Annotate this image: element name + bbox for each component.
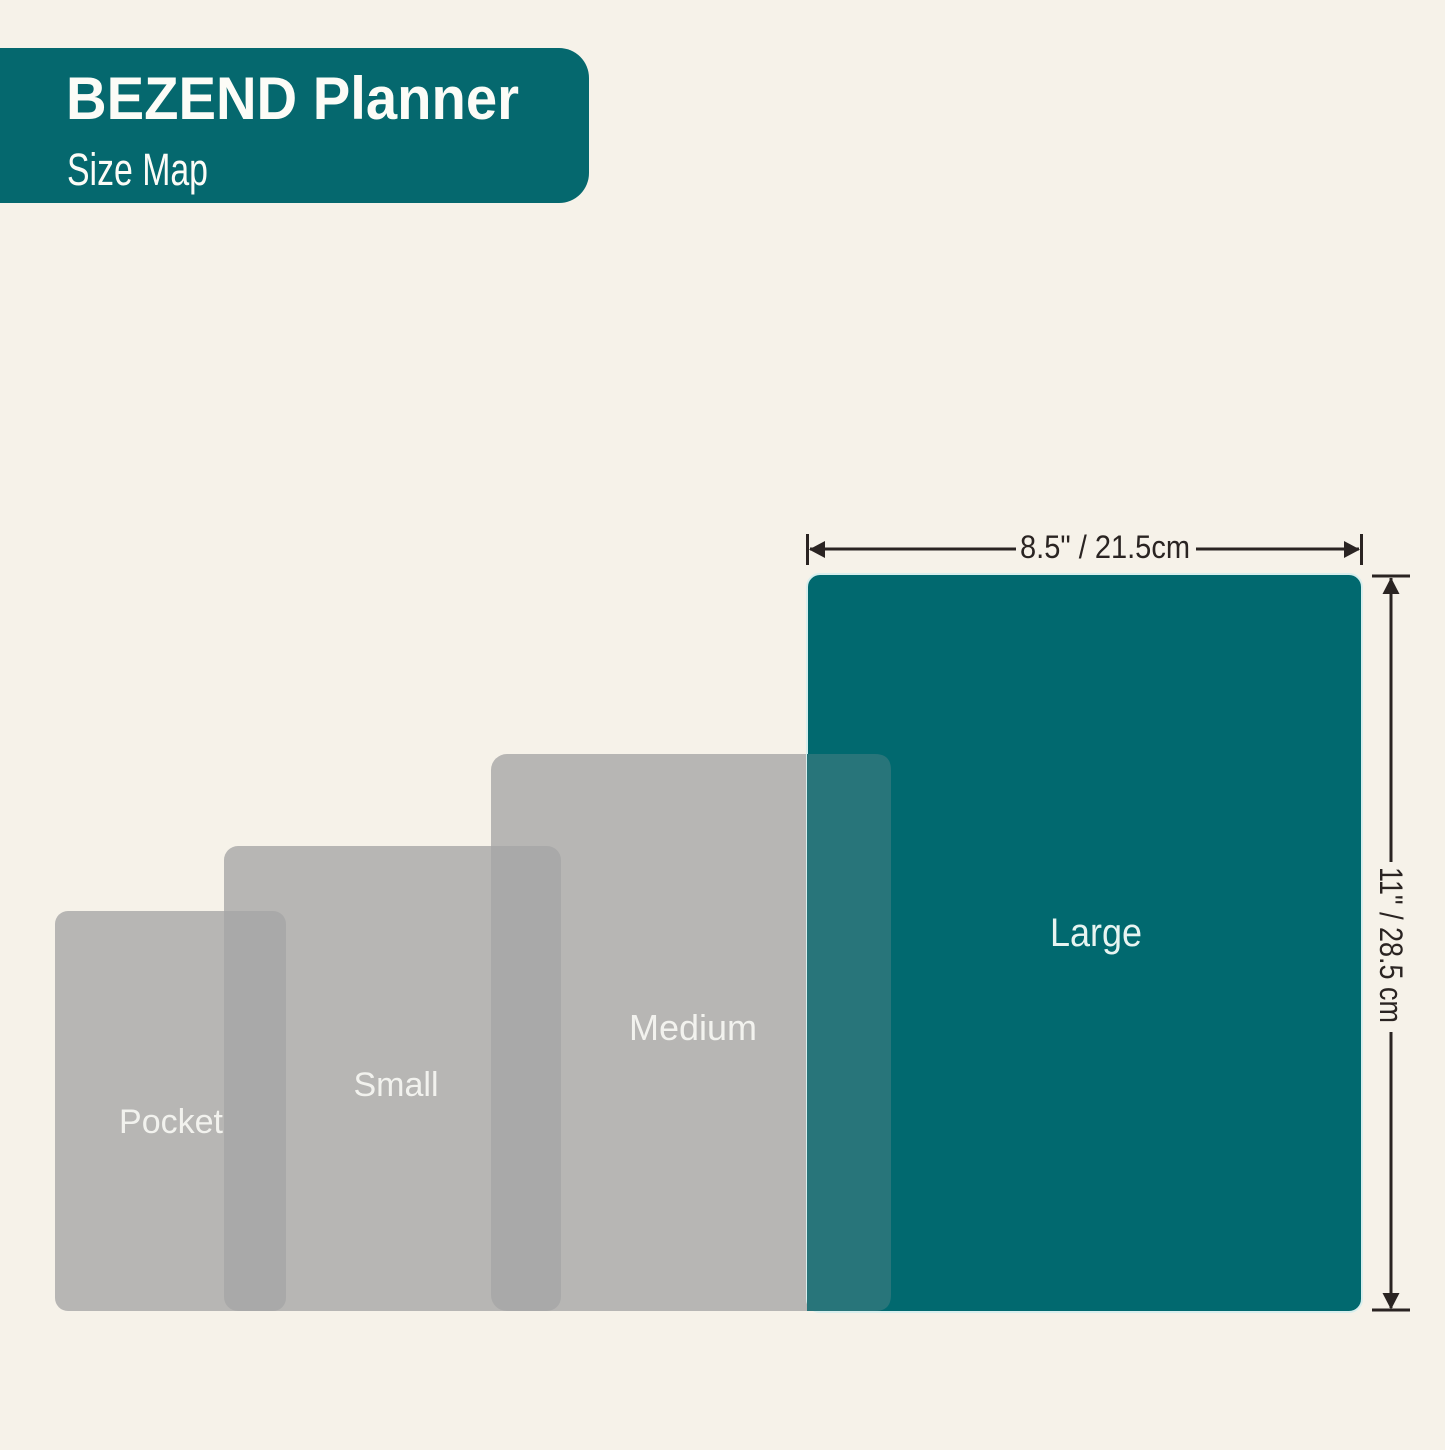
- svg-text:Medium: Medium: [629, 1007, 757, 1048]
- svg-text:8.5" / 21.5cm: 8.5" / 21.5cm: [1020, 529, 1190, 565]
- svg-text:Small: Small: [353, 1066, 438, 1104]
- svg-text:Size Map: Size Map: [67, 144, 208, 195]
- svg-text:11" / 28.5 cm: 11" / 28.5 cm: [1373, 867, 1409, 1023]
- svg-text:Large: Large: [1050, 911, 1142, 955]
- svg-text:Pocket: Pocket: [119, 1103, 223, 1141]
- svg-text:BEZEND Planner: BEZEND Planner: [66, 65, 519, 132]
